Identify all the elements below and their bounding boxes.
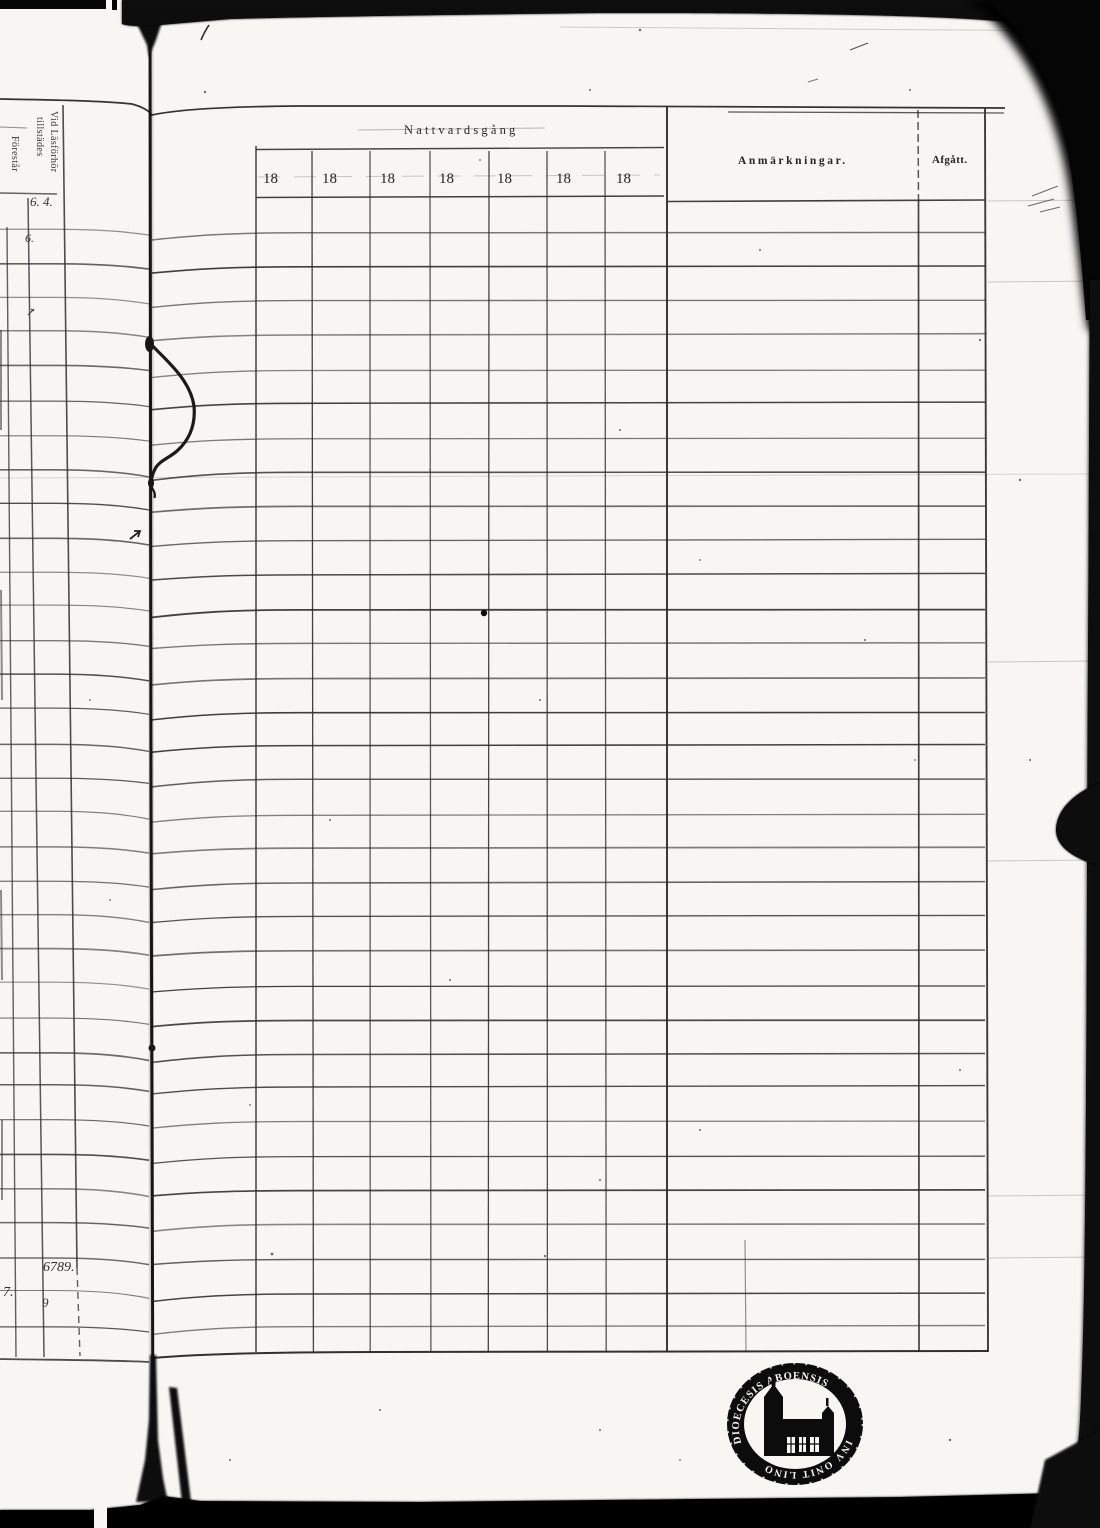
- svg-text:18: 18: [263, 171, 278, 187]
- svg-text:Förestår: Förestår: [9, 136, 20, 172]
- svg-text:6789.: 6789.: [43, 1260, 75, 1275]
- svg-text:6.: 6.: [25, 231, 34, 245]
- svg-text:18: 18: [556, 171, 571, 187]
- svg-text:18: 18: [616, 171, 631, 187]
- svg-text:18: 18: [497, 171, 512, 187]
- svg-text:Afgått.: Afgått.: [932, 154, 967, 166]
- svg-text:Vid Läsförhör: Vid Läsförhör: [48, 111, 59, 173]
- svg-text:tillstädes: tillstädes: [34, 117, 45, 157]
- svg-text:Anmärkningar.: Anmärkningar.: [738, 155, 848, 167]
- svg-text:9: 9: [42, 1295, 49, 1310]
- svg-text:6. 4.: 6. 4.: [30, 194, 53, 209]
- svg-text:7.: 7.: [3, 1285, 14, 1300]
- svg-text:Nattvardsgång: Nattvardsgång: [404, 123, 519, 137]
- svg-text:18: 18: [322, 171, 337, 187]
- svg-text:18: 18: [380, 171, 395, 187]
- svg-text:18: 18: [439, 171, 454, 187]
